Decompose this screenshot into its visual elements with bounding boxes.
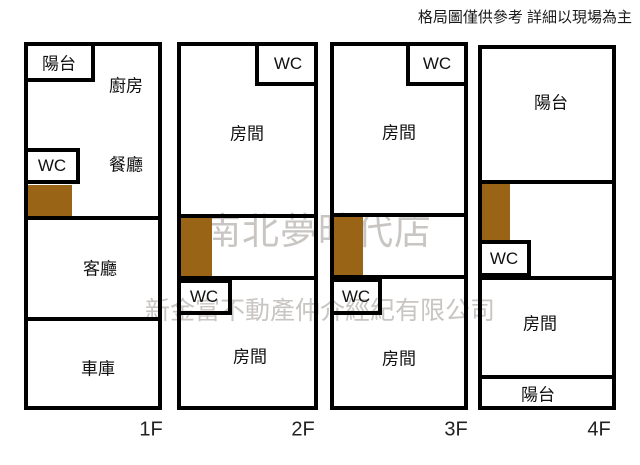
room-label-wc: WC [342,287,370,307]
disclaimer-text: 格局圖僅供參考 詳細以現場為主 [418,6,632,27]
room-label-wc: WC [423,54,451,74]
room-label-kitchen: 廚房 [109,72,143,97]
room-label-balcony: 陽台 [42,50,76,75]
floor-1f-inner-wall [24,317,162,321]
room-label-balcony: 陽台 [521,381,555,406]
room-label-garage: 車庫 [81,355,115,380]
floor-label-2f: 2F [291,419,314,442]
room-label-room: 房間 [230,120,264,145]
room-label-room: 房間 [233,343,267,368]
floor-4f-inner-wall [478,375,616,379]
floor-label-3f: 3F [444,419,467,442]
floor-4f-stairs [482,184,510,241]
room-label-wc: WC [190,287,218,307]
room-label-dining: 餐廳 [109,151,143,176]
floor-label-4f: 4F [587,419,610,442]
room-label-wc: WC [274,54,302,74]
room-label-living: 客廳 [83,255,117,280]
floor-1f-inner-wall [24,216,162,220]
room-label-wc: WC [490,249,518,269]
floor-3f-stairs [334,217,363,275]
floor-plan-canvas: 南北夢時代店 新金富不動產仲介經紀有限公司 陽台 廚房 WC 餐廳 客廳 車庫 … [0,0,640,465]
room-label-room: 房間 [523,310,557,335]
room-label-room: 房間 [382,345,416,370]
floor-label-1f: 1F [139,419,162,442]
room-label-balcony: 陽台 [534,89,568,114]
floor-2f-stairs [181,218,212,276]
floor-1f-stairs [28,185,72,217]
room-label-wc: WC [38,156,66,176]
room-label-room: 房間 [382,119,416,144]
